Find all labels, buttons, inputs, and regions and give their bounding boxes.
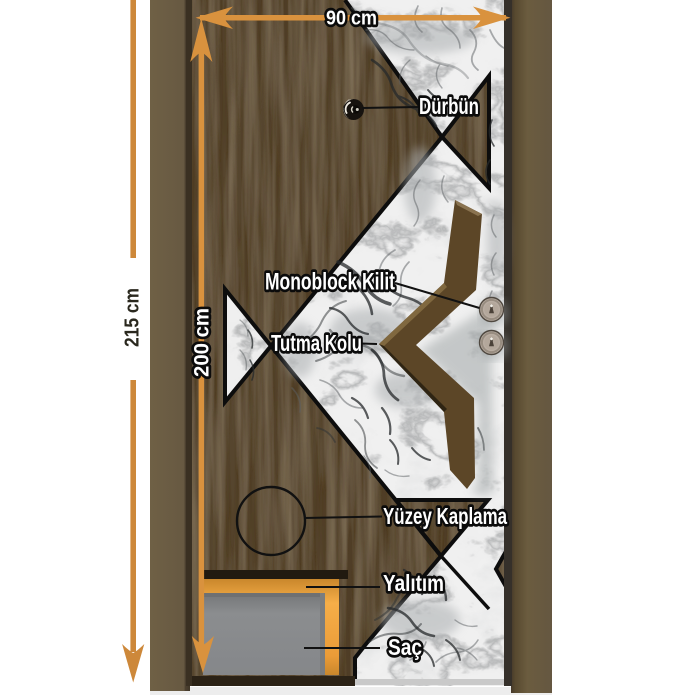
svg-text:Yüzey Kaplama: Yüzey Kaplama — [383, 503, 507, 529]
svg-text:Yalıtım: Yalıtım — [383, 570, 444, 596]
svg-text:200 cm: 200 cm — [191, 308, 214, 377]
svg-text:Monoblock Kilit: Monoblock Kilit — [265, 269, 395, 296]
svg-text:215 cm: 215 cm — [122, 288, 144, 347]
svg-text:Dürbün: Dürbün — [419, 93, 479, 119]
svg-text:90 cm: 90 cm — [326, 7, 377, 30]
svg-text:Tutma Kolu: Tutma Kolu — [271, 330, 362, 356]
svg-text:Saç: Saç — [388, 634, 422, 660]
